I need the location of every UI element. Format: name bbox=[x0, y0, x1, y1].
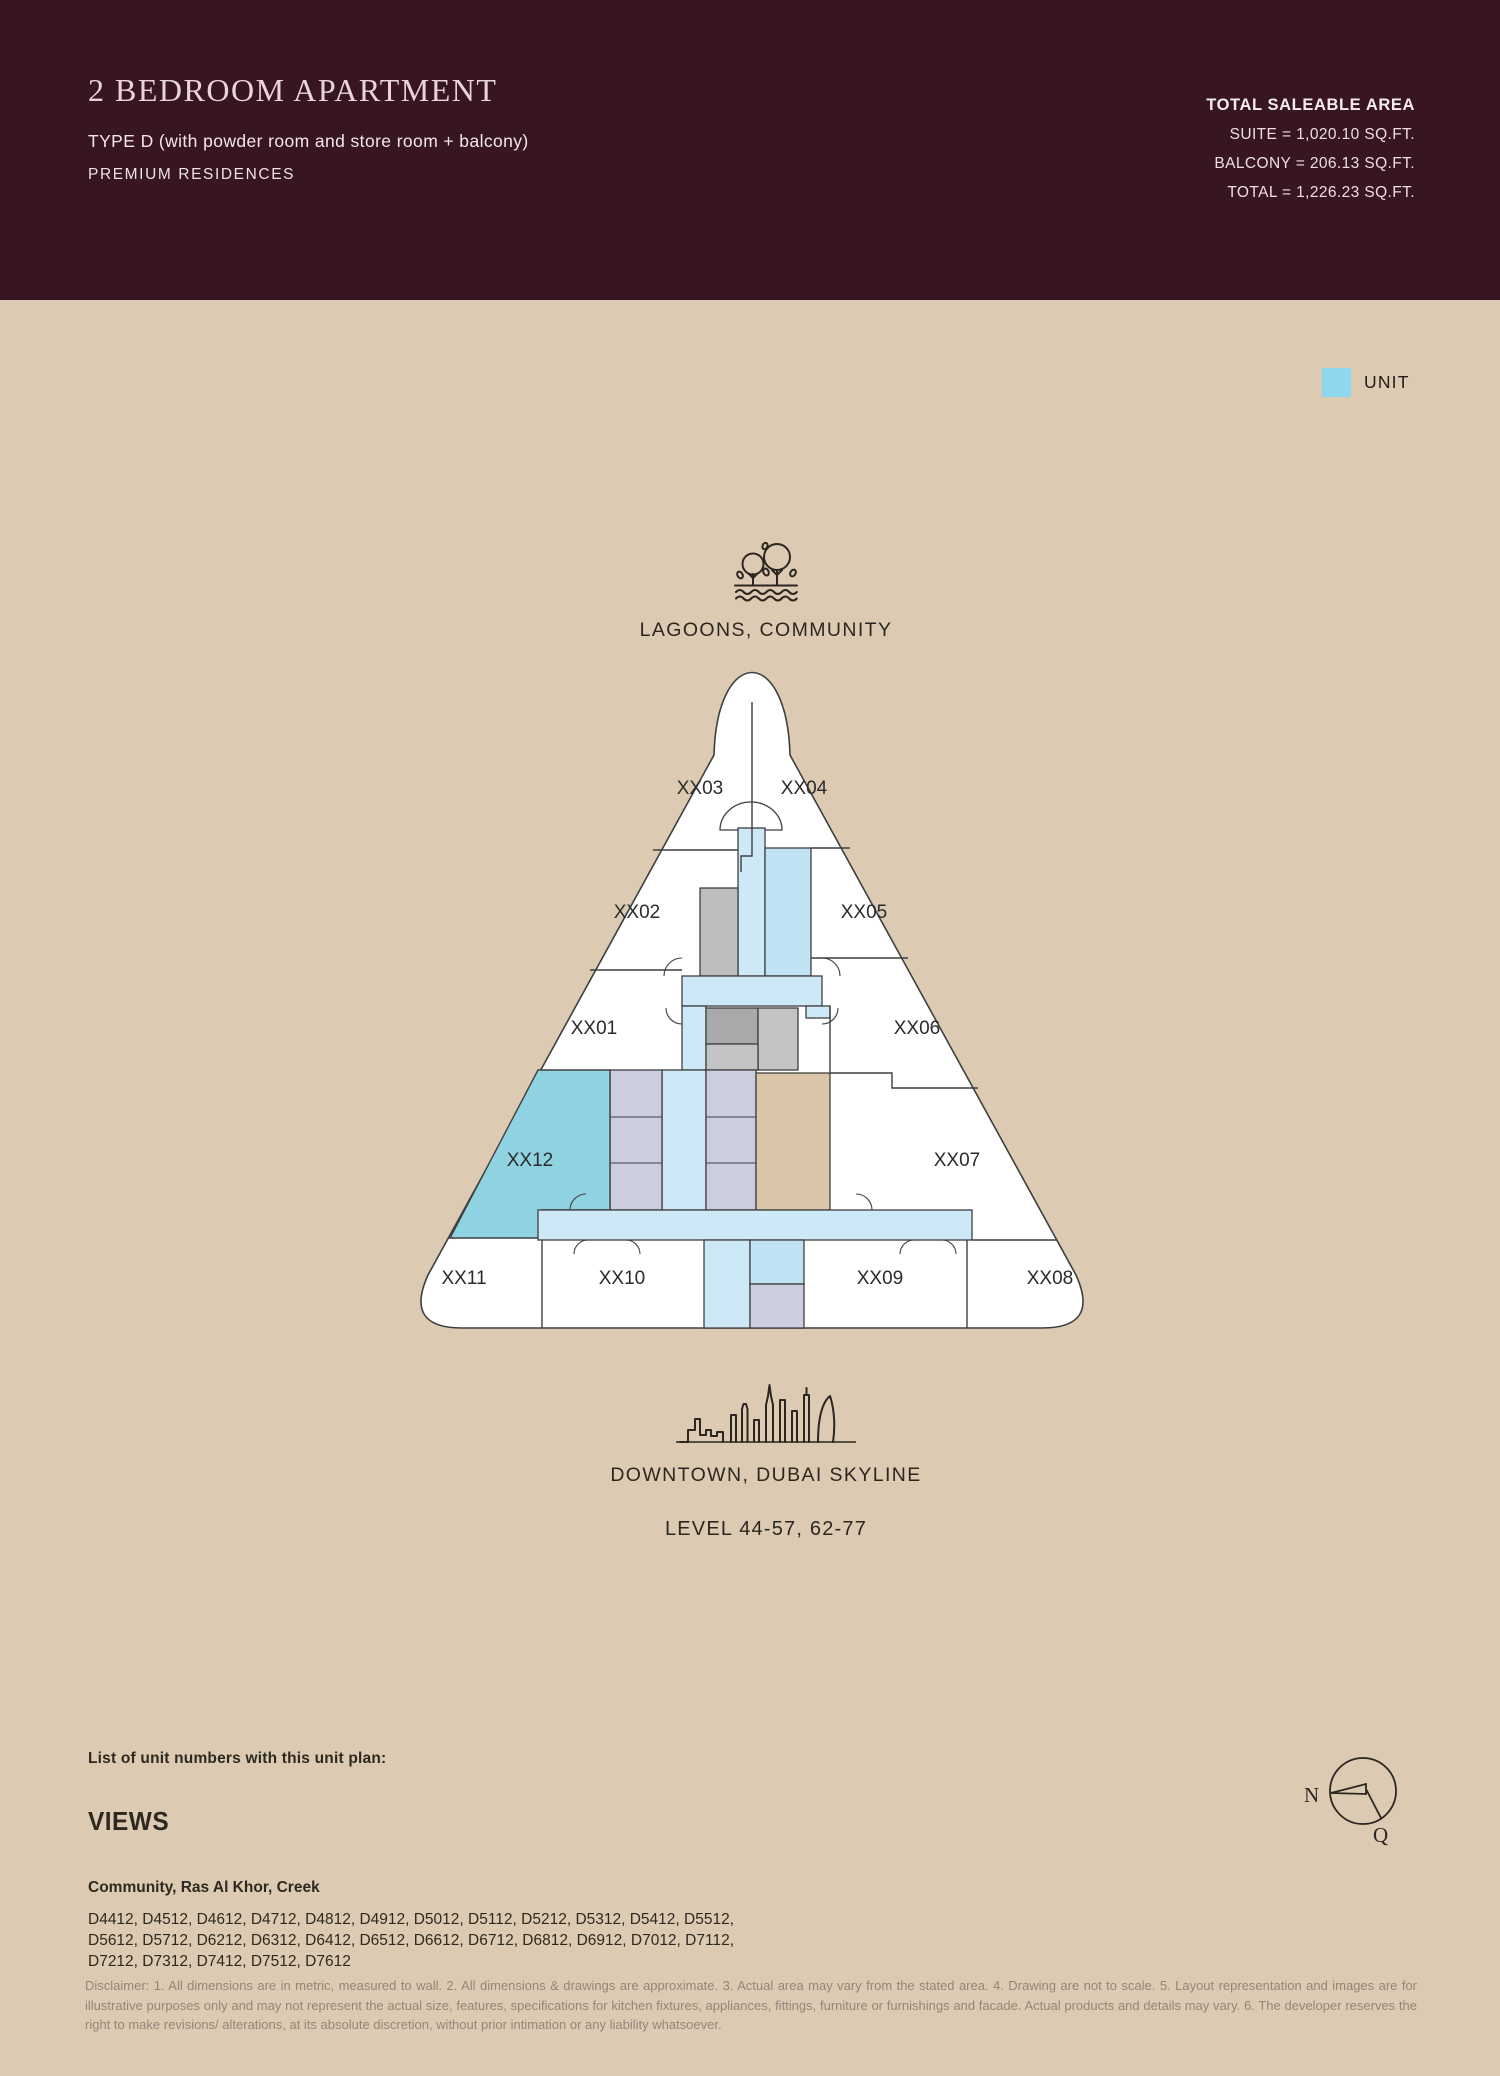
shaft-block-tan bbox=[756, 1073, 830, 1210]
corridor-bar-lower bbox=[538, 1210, 972, 1240]
bottom-view-block: DOWNTOWN, DUBAI SKYLINE bbox=[466, 1383, 1066, 1487]
area-suite: SUITE = 1,020.10 SQ.FT. bbox=[1206, 126, 1415, 144]
unit-numbers-list: D4412, D4512, D4612, D4712, D4812, D4912… bbox=[88, 1909, 808, 1972]
page-tagline: PREMIUM RESIDENCES bbox=[88, 166, 529, 184]
level-label: LEVEL 44-57, 62-77 bbox=[466, 1518, 1066, 1541]
brochure-page: 2 BEDROOM APARTMENT TYPE D (with powder … bbox=[0, 0, 1500, 2076]
unit-label-xx07: XX07 bbox=[934, 1150, 980, 1171]
skyline-icon bbox=[676, 1383, 856, 1447]
unit-label-xx06: XX06 bbox=[894, 1018, 940, 1039]
unit-label-xx02: XX02 bbox=[614, 902, 660, 923]
corridor-columns bbox=[662, 1070, 706, 1210]
unit-label-xx10: XX10 bbox=[599, 1268, 645, 1289]
area-balcony: BALCONY = 206.13 SQ.FT. bbox=[1206, 155, 1415, 173]
unit-label-xx04: XX04 bbox=[781, 778, 828, 799]
header-title-block: 2 BEDROOM APARTMENT TYPE D (with powder … bbox=[88, 72, 529, 184]
bottom-view-label: DOWNTOWN, DUBAI SKYLINE bbox=[466, 1464, 1066, 1487]
lagoons-trees-icon bbox=[728, 540, 804, 602]
lobby-room bbox=[765, 848, 811, 976]
stair-block-center bbox=[706, 1070, 756, 1210]
page-subtitle: TYPE D (with powder room and store room … bbox=[88, 131, 529, 152]
page-title: 2 BEDROOM APARTMENT bbox=[88, 72, 529, 109]
unit-label-xx05: XX05 bbox=[841, 902, 887, 923]
corridor-step-right bbox=[806, 1006, 830, 1018]
bottom-blue-cell bbox=[750, 1240, 804, 1284]
stair-block-left bbox=[610, 1070, 662, 1210]
unit-label-xx11: XX11 bbox=[441, 1268, 486, 1289]
unit-label-xx01: XX01 bbox=[571, 1018, 617, 1039]
elevator-core-light-right bbox=[758, 1008, 798, 1070]
unit-label-xx09: XX09 bbox=[857, 1268, 903, 1289]
disclaimer-text: Disclaimer: 1. All dimensions are in met… bbox=[85, 1976, 1417, 2035]
area-total: TOTAL = 1,226.23 SQ.FT. bbox=[1206, 184, 1415, 202]
area-heading: TOTAL SALEABLE AREA bbox=[1206, 96, 1415, 115]
elevator-core-light-bottom bbox=[706, 1044, 758, 1070]
compass-needle bbox=[1331, 1784, 1366, 1794]
unit-label-xx08: XX08 bbox=[1027, 1268, 1073, 1289]
floor-plan-svg: XX03 XX04 XX02 XX05 XX01 XX06 XX12 XX07 … bbox=[352, 660, 1152, 1340]
corridor-bar-upper bbox=[682, 976, 822, 1006]
bottom-lavender-cell bbox=[750, 1284, 804, 1328]
views-heading: VIEWS bbox=[88, 1806, 1338, 1837]
unit-label-xx03: XX03 bbox=[677, 778, 723, 799]
elevator-core-dark bbox=[706, 1008, 758, 1044]
legend: UNIT bbox=[1322, 368, 1410, 397]
corridor-bottom-shaft bbox=[704, 1240, 750, 1328]
saleable-area-block: TOTAL SALEABLE AREA SUITE = 1,020.10 SQ.… bbox=[1206, 96, 1415, 202]
top-view-label: LAGOONS, COMMUNITY bbox=[466, 619, 1066, 642]
legend-label: UNIT bbox=[1364, 372, 1410, 393]
unit-list-heading: List of unit numbers with this unit plan… bbox=[88, 1750, 1418, 1768]
compass-qibla-label: Q bbox=[1373, 1823, 1388, 1847]
corridor-mid bbox=[682, 1006, 706, 1070]
footer-block: List of unit numbers with this unit plan… bbox=[88, 1750, 1418, 1972]
top-view-block: LAGOONS, COMMUNITY bbox=[466, 540, 1066, 642]
header-band: 2 BEDROOM APARTMENT TYPE D (with powder … bbox=[0, 0, 1500, 300]
compass-north-label: N bbox=[1304, 1783, 1319, 1807]
views-value: Community, Ras Al Khor, Creek bbox=[88, 1879, 1418, 1897]
compass-qibla-line bbox=[1366, 1789, 1381, 1818]
floor-plan: XX03 XX04 XX02 XX05 XX01 XX06 XX12 XX07 … bbox=[352, 660, 1152, 1340]
service-block-upper bbox=[700, 888, 738, 976]
compass: N Q bbox=[1292, 1746, 1442, 1861]
unit-label-xx12: XX12 bbox=[507, 1150, 553, 1171]
unit-color-swatch bbox=[1322, 368, 1351, 397]
